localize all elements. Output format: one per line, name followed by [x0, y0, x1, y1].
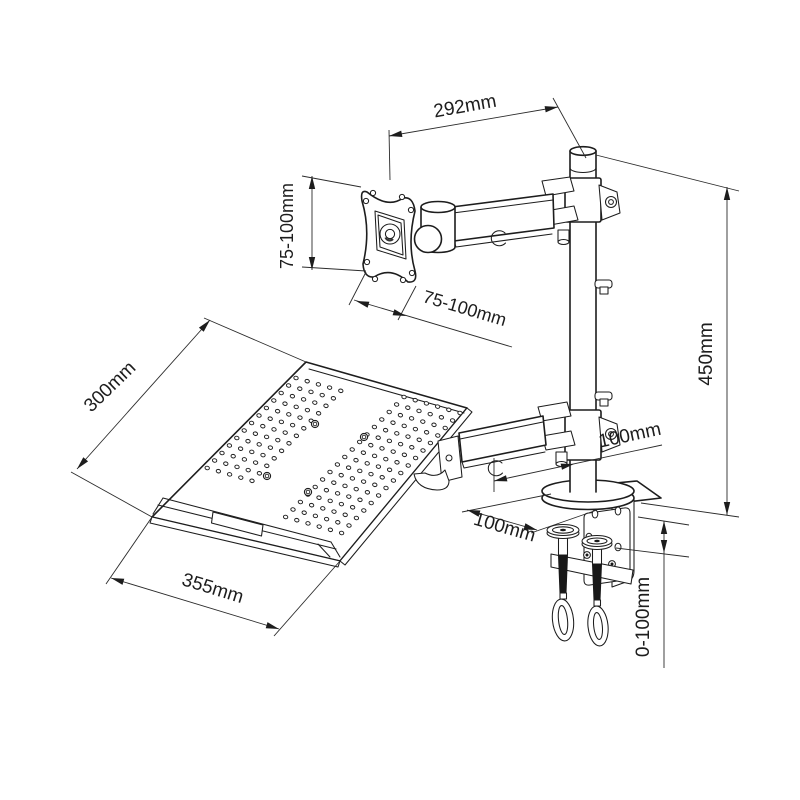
perforation-dot	[335, 462, 340, 467]
vesa-screw-hole	[370, 190, 375, 195]
vesa-screw-hole	[372, 276, 377, 281]
perforation-dot	[379, 446, 384, 451]
perforation-dot	[245, 439, 250, 444]
perforation-dot	[320, 477, 325, 482]
perforation-dot	[424, 430, 429, 435]
perforation-dot	[387, 410, 392, 415]
vesa-screw-hole	[399, 194, 404, 199]
perforation-dot	[312, 400, 317, 405]
pole-knob-upper	[595, 280, 612, 294]
perforation-dot	[275, 438, 280, 443]
perforation-dot	[297, 415, 302, 420]
perforation-dot	[416, 409, 421, 414]
perforation-dot	[327, 470, 332, 475]
perforation-dot	[271, 398, 276, 403]
screw-shaft	[592, 564, 602, 600]
ball-joint	[415, 226, 442, 253]
perforation-dot	[331, 509, 336, 514]
perforation-dot	[435, 404, 440, 409]
perforation-dot	[305, 521, 310, 526]
perforation-dot	[249, 450, 254, 455]
perforation-dot	[249, 479, 254, 484]
perforation-dot	[443, 426, 448, 431]
clamp-screw-left	[547, 525, 579, 642]
screw-collar	[560, 593, 567, 599]
tray-bracket-bowl	[414, 470, 449, 490]
perforation-dot	[354, 487, 359, 492]
perforation-dot	[368, 472, 373, 477]
perforation-dot	[361, 508, 366, 513]
arrowhead	[661, 540, 667, 553]
perforation-dot	[402, 453, 407, 458]
perforation-dot	[227, 443, 232, 448]
perforation-dot	[446, 408, 451, 413]
perforation-dot	[338, 389, 343, 394]
perforation-dot	[256, 413, 261, 418]
perforation-dot	[339, 531, 344, 536]
tray-mount-hole	[362, 435, 366, 439]
perforation-dot	[238, 475, 243, 480]
perforation-dot	[431, 423, 436, 428]
perforation-dot	[294, 434, 299, 439]
perforation-dot	[234, 436, 239, 441]
perforation-dot	[257, 471, 262, 476]
arm-beam	[452, 194, 554, 241]
perforation-dot	[286, 383, 291, 388]
dimension-vesa-height: 75-100mm	[277, 176, 366, 271]
tray-bracket-hole	[446, 455, 452, 461]
tray-mount-hole	[306, 490, 310, 494]
perforation-dot	[387, 439, 392, 444]
cable-clip	[488, 461, 502, 476]
perforation-dot	[387, 468, 392, 473]
perforation-dot	[294, 518, 299, 523]
pole-top-cap	[570, 147, 596, 156]
extension-line	[389, 130, 390, 180]
clamp-round-hole	[615, 543, 621, 551]
perforation-dot	[350, 476, 355, 481]
perforation-dot	[264, 464, 269, 469]
screw-shaft	[558, 555, 568, 593]
dimension-label: 355mm	[179, 569, 246, 608]
perforation-dot	[450, 418, 455, 423]
perforation-dot	[346, 523, 351, 528]
perforation-dot	[294, 405, 299, 410]
perforation-dot	[335, 520, 340, 525]
perforation-dot	[242, 428, 247, 433]
perforation-dot	[268, 416, 273, 421]
vesa-hub-hole	[385, 229, 394, 238]
arrowhead	[111, 578, 124, 585]
perforation-dot	[402, 424, 407, 429]
perforation-dot	[361, 479, 366, 484]
dimension-label: 100mm	[471, 509, 538, 547]
extension-line	[462, 494, 551, 512]
perforation-dot	[234, 465, 239, 470]
dimension-vesa-width: 75-100mm	[349, 272, 512, 347]
perforation-dot	[219, 451, 224, 456]
perforation-dot	[361, 450, 366, 455]
perforation-dot	[435, 433, 440, 438]
perforation-dot	[424, 401, 429, 406]
perforation-dot	[343, 513, 348, 518]
perforation-dot	[331, 480, 336, 485]
perforation-dot	[264, 406, 269, 411]
perforation-dot	[372, 425, 377, 430]
extension-line	[596, 155, 739, 191]
arrowhead	[266, 622, 279, 629]
dimension-label: 75-100mm	[277, 183, 297, 269]
perforation-dot	[320, 393, 325, 398]
perforation-dot	[316, 411, 321, 416]
extension-line	[349, 272, 366, 305]
perforation-dot	[238, 446, 243, 451]
perforation-dot	[253, 460, 258, 465]
perforation-dot	[380, 475, 385, 480]
technical-drawing: 292mm 450mm 75-100mm 75-100mm 300mm	[0, 0, 800, 800]
perforation-dot	[268, 445, 273, 450]
clamp-bolt-center	[611, 563, 614, 566]
perforation-dot	[305, 408, 310, 413]
perforation-dot	[357, 469, 362, 474]
perforation-dot	[242, 457, 247, 462]
perforation-dot	[354, 516, 359, 521]
perforation-dot	[428, 441, 433, 446]
vesa-plate	[362, 190, 416, 282]
perforation-dot	[317, 524, 322, 529]
perforation-dot	[316, 382, 321, 387]
arrowhead	[724, 502, 730, 515]
clamp-screws	[547, 525, 612, 647]
perforation-dot	[249, 421, 254, 426]
perforation-dot	[365, 461, 370, 466]
perforation-dot	[376, 464, 381, 469]
perforation-dot	[369, 501, 374, 506]
perforation-dot	[365, 490, 370, 495]
arrowhead	[393, 309, 406, 316]
perforation-dot	[308, 390, 313, 395]
perforation-dot	[383, 486, 388, 491]
collar-screw	[606, 197, 617, 208]
perforation-dot	[286, 441, 291, 446]
perforation-dot	[272, 456, 277, 461]
perforation-dot	[264, 435, 269, 440]
perforation-dot	[283, 430, 288, 435]
perforation-dot	[383, 428, 388, 433]
perforation-dot	[405, 434, 410, 439]
perforation-dot	[409, 416, 414, 421]
perforation-dot	[257, 442, 262, 447]
arrowhead	[661, 521, 667, 534]
perforation-dot	[376, 435, 381, 440]
perforation-dot	[372, 483, 377, 488]
perforation-dot	[413, 398, 418, 403]
perforation-dot	[293, 376, 298, 381]
perforation-dot	[413, 456, 418, 461]
arrowhead	[389, 131, 402, 137]
perforation-dot	[324, 517, 329, 522]
perforation-dot	[417, 438, 422, 443]
perforation-dot	[271, 427, 276, 432]
tray-mount-hole	[313, 422, 317, 426]
dimension-label: 292mm	[432, 91, 498, 123]
perforation-dot	[212, 458, 217, 463]
perforation-dot	[279, 449, 284, 454]
perforation-dot	[302, 510, 307, 515]
perforation-dot	[290, 394, 295, 399]
perforation-dot	[335, 491, 340, 496]
perforation-dot	[409, 445, 414, 450]
perforation-dot	[260, 424, 265, 429]
perforation-dot	[313, 514, 318, 519]
knob-stem	[600, 399, 608, 406]
perforation-dot	[275, 409, 280, 414]
perforation-dot	[394, 431, 399, 436]
perforation-dot	[223, 461, 228, 466]
perforation-dot	[353, 458, 358, 463]
extension-line	[204, 318, 306, 362]
perforation-dot	[279, 391, 284, 396]
perforation-dot	[379, 417, 384, 422]
perforation-dot	[346, 465, 351, 470]
perforation-dot	[342, 455, 347, 460]
dimension-label: 0-100mm	[633, 577, 654, 657]
perforation-dot	[328, 499, 333, 504]
arm-hinge-pin-end	[558, 240, 569, 245]
perforation-dot	[391, 449, 396, 454]
knob-stem	[600, 287, 608, 294]
perforation-dot	[216, 469, 221, 474]
perforation-dot	[324, 488, 329, 493]
dimension-arm-length: 292mm	[389, 91, 586, 180]
perforation-dot	[328, 528, 333, 533]
perforation-dot	[398, 413, 403, 418]
perforation-dot	[398, 471, 403, 476]
perforation-dot	[260, 453, 265, 458]
perforation-dot	[420, 448, 425, 453]
perforation-dot	[313, 485, 318, 490]
extension-line	[106, 517, 152, 584]
screw-head-center	[594, 540, 600, 542]
perforation-dot	[390, 420, 395, 425]
perforation-dot	[428, 412, 433, 417]
perforation-dot	[301, 397, 306, 402]
screw-head-center	[560, 529, 566, 532]
perforation-dot	[282, 401, 287, 406]
perforation-dot	[406, 463, 411, 468]
perforation-dot	[316, 495, 321, 500]
perforation-dot	[279, 420, 284, 425]
perforation-dot	[457, 411, 462, 416]
perforation-dot	[394, 460, 399, 465]
perforation-dot	[246, 468, 251, 473]
perforation-dot	[286, 412, 291, 417]
screw-collar	[594, 600, 601, 606]
perforation-dot	[339, 502, 344, 507]
perforation-dot	[305, 379, 310, 384]
vesa-screw-hole	[364, 259, 369, 264]
perforation-dot	[331, 396, 336, 401]
perforation-dot	[372, 454, 377, 459]
extension-line	[641, 503, 739, 517]
perforation-dot	[290, 507, 295, 512]
dimension-label: 450mm	[696, 322, 717, 385]
extension-line	[71, 472, 152, 517]
perforation-dot	[357, 498, 362, 503]
perforation-dot	[350, 447, 355, 452]
perforation-dot	[253, 431, 258, 436]
perforation-dot	[376, 493, 381, 498]
perforation-dot	[283, 515, 288, 520]
perforation-dot	[350, 505, 355, 510]
pole-knob-lower	[595, 392, 612, 406]
perforation-dot	[383, 457, 388, 462]
perforation-dot	[368, 443, 373, 448]
monitor-arm	[415, 177, 579, 253]
perforation-dot	[339, 473, 344, 478]
perforation-dot	[405, 405, 410, 410]
perforation-dot	[227, 472, 232, 477]
perforation-dot	[420, 419, 425, 424]
tray-arm-beam	[459, 416, 546, 462]
arrowhead	[356, 301, 369, 308]
perforation-dot	[327, 385, 332, 390]
perforation-dot	[398, 442, 403, 447]
perforation-dot	[205, 466, 210, 471]
tray-mount-hole	[265, 474, 269, 478]
perforation-dot	[231, 454, 236, 459]
extension-line	[274, 561, 340, 636]
perforation-dot	[290, 423, 295, 428]
perforation-dot	[401, 395, 406, 400]
perforation-dot	[342, 484, 347, 489]
perforation-dot	[320, 506, 325, 511]
perforation-dot	[301, 426, 306, 431]
arrowhead	[545, 106, 558, 112]
clamp-slot-hole	[615, 507, 621, 515]
perforation-dot	[309, 503, 314, 508]
perforation-dot	[346, 494, 351, 499]
perforation-dot	[357, 440, 362, 445]
perforation-dot	[439, 415, 444, 420]
vesa-screw-hole	[408, 207, 413, 212]
laptop-tray	[150, 362, 472, 567]
perforation-dot	[297, 386, 302, 391]
vesa-screw-hole	[363, 198, 368, 203]
perforation-dot	[323, 404, 328, 409]
perforation-dot	[391, 478, 396, 483]
arm-joint-cylinder-top	[421, 202, 455, 213]
vesa-screw-hole	[409, 270, 414, 275]
perforation-dot	[298, 500, 303, 505]
clamp-bolt-center	[586, 554, 589, 557]
perforation-dot	[413, 427, 418, 432]
vesa-screw-hole	[400, 277, 405, 282]
perforation-dot	[394, 402, 399, 407]
